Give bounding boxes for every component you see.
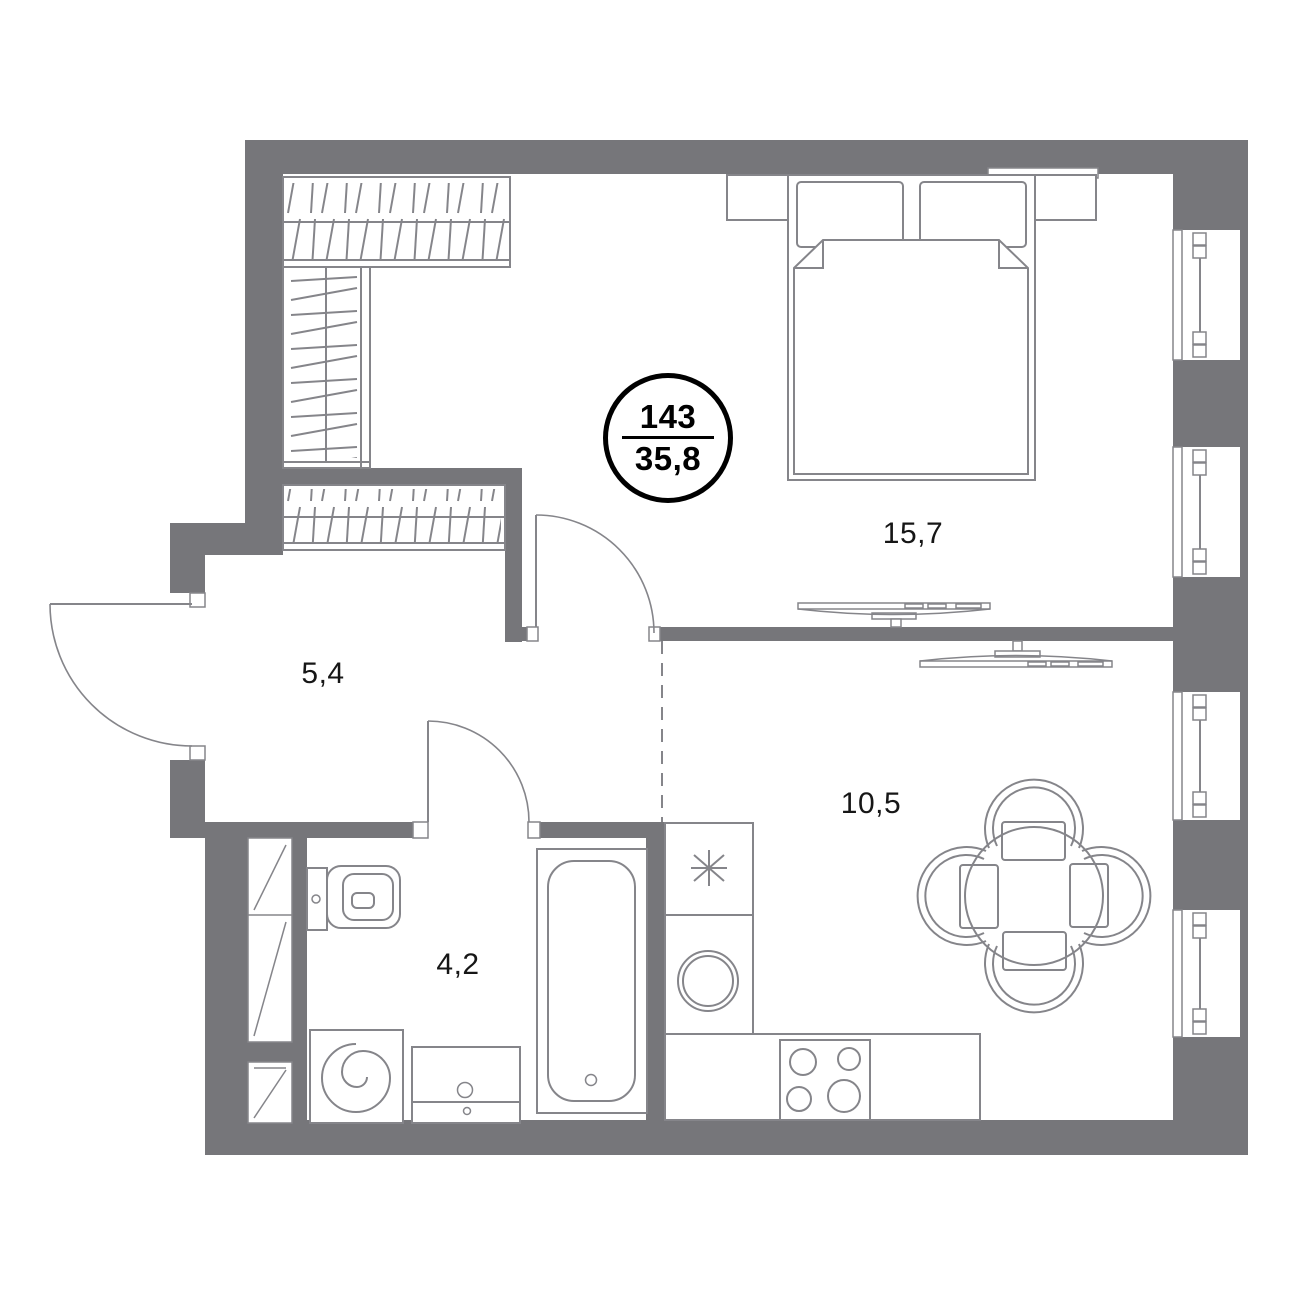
bedroom-door [536, 515, 654, 633]
window-sash-square [1193, 805, 1206, 817]
wardrobe-hanging-hatch [288, 272, 361, 458]
window-sash-square [1193, 345, 1206, 357]
bathroom-door-jamb [528, 822, 540, 838]
wall-right-pier-1 [1173, 360, 1248, 447]
bed [727, 168, 1098, 480]
wardrobe-side [283, 267, 370, 468]
window-sash-square [1193, 1009, 1206, 1021]
chair-back-inner-arc [925, 855, 984, 937]
wall-entry-step [170, 523, 283, 555]
chair [985, 780, 1083, 860]
window-sash-square [1193, 695, 1206, 707]
tv-stand-stem [891, 619, 901, 627]
tv-detail [1078, 662, 1103, 666]
bedroom-door-jamb [527, 627, 538, 641]
chair [1070, 847, 1150, 945]
bathtub-outer [537, 849, 647, 1113]
wall-topright-block [1173, 174, 1248, 230]
wall-right-mid-block [1173, 577, 1248, 692]
chair-back-inner-arc [993, 946, 1075, 1005]
nightstand-left [727, 175, 788, 220]
entry-door-jamb [190, 593, 205, 607]
pillow-left [797, 182, 903, 247]
entry-door-swing-arc [50, 604, 192, 746]
chair-back-inner-arc [1084, 855, 1143, 937]
bathtub [537, 849, 647, 1113]
window-sill-face [1173, 230, 1182, 360]
wall-hall-top [245, 468, 522, 485]
room-label-bathroom: 4,2 [436, 948, 479, 982]
floor-plan: 15,7 5,4 4,2 10,5 143 35,8 [0, 0, 1300, 1300]
wall-bedroom-living-divider [660, 627, 1173, 641]
wall-niche-divider [248, 1042, 292, 1062]
chair-back-outer-arc [985, 780, 1083, 848]
tv-detail [1028, 662, 1046, 666]
wall-entry-upper [170, 555, 205, 593]
vanity-top [412, 1047, 520, 1102]
mattress [794, 240, 1028, 474]
nightstand-right [1035, 175, 1096, 220]
pillow-right [920, 182, 1026, 247]
window-2 [1173, 447, 1206, 577]
window-sash-square [1193, 562, 1206, 574]
window-sill-face [1173, 447, 1182, 577]
window-sash-square [1193, 792, 1206, 804]
toilet [307, 866, 400, 930]
unit-badge: 143 35,8 [603, 373, 733, 503]
wardrobe-top [283, 177, 510, 267]
window-3 [1173, 692, 1206, 820]
wall-bath-left [205, 822, 248, 1155]
window-sash-square [1193, 246, 1206, 258]
unit-total-area: 35,8 [635, 442, 701, 476]
room-label-bedroom: 15,7 [883, 517, 943, 551]
chair-back-outer-arc [918, 847, 986, 945]
tv-detail [928, 604, 946, 608]
tv-detail [1051, 662, 1069, 666]
tv-stand-stem [1013, 641, 1022, 651]
washing-machine [310, 1030, 403, 1123]
tv-detail [956, 604, 981, 608]
entry-door-jamb [190, 746, 205, 760]
wall-hall-right [505, 468, 522, 642]
wall-bath-inner-strip [292, 838, 307, 1120]
wall-bath-kitchen [646, 838, 665, 1120]
bathroom-door-swing-arc [428, 721, 529, 822]
window-1 [1173, 230, 1206, 360]
chair [985, 932, 1083, 1012]
wall-bath-top-right [540, 822, 665, 838]
bedroom-door-swing-arc [536, 515, 654, 633]
room-label-kitchen-living: 10,5 [841, 787, 901, 821]
wall-facade-strip [1240, 230, 1248, 1037]
wall-left-upper [245, 140, 283, 523]
bathroom-door-jamb [413, 822, 428, 838]
doors [50, 515, 654, 822]
kitchen [665, 823, 980, 1120]
chair-back-inner-arc [993, 787, 1075, 846]
bathroom-fixtures [307, 849, 647, 1123]
toilet-tank [307, 868, 327, 930]
window-sash-square [1193, 233, 1206, 245]
chair [918, 847, 998, 945]
window-sash-square [1193, 332, 1206, 344]
dining-table [918, 780, 1151, 1013]
window-4 [1173, 910, 1206, 1037]
wall-bottom [205, 1120, 1248, 1155]
window-sill-face [1173, 692, 1182, 820]
tv-detail [905, 604, 923, 608]
entry-door [50, 604, 192, 746]
door-jambs [190, 593, 660, 838]
floor-plan-drawing [0, 0, 1300, 1300]
shaft-niches [248, 838, 292, 1123]
unit-badge-divider [622, 436, 714, 439]
window-sash-square [1193, 913, 1206, 925]
wall-right-pier-2 [1173, 820, 1248, 910]
window-sill-face [1173, 910, 1182, 1037]
room-label-hallway: 5,4 [301, 657, 344, 691]
wall-entry-lower [170, 760, 205, 838]
unit-number: 143 [640, 400, 697, 434]
vanity-sink [412, 1047, 520, 1123]
table-top [965, 827, 1103, 965]
bathroom-door [428, 721, 529, 822]
tv-living [920, 641, 1112, 667]
window-sash-square [1193, 708, 1206, 720]
wall-divider-stub [505, 627, 527, 641]
chair-back-outer-arc [985, 944, 1083, 1012]
window-sash-square [1193, 1022, 1206, 1034]
wall-bath-top-left [205, 822, 413, 838]
window-sash-square [1193, 549, 1206, 561]
window-sash-square [1193, 450, 1206, 462]
tv-bedroom [798, 603, 990, 627]
chair-back-outer-arc [1082, 847, 1150, 945]
shaft-niche-upper [248, 838, 292, 1042]
hall-closet [283, 485, 505, 550]
window-sash-square [1193, 463, 1206, 475]
vanity-base [412, 1102, 520, 1123]
window-sash-square [1193, 926, 1206, 938]
